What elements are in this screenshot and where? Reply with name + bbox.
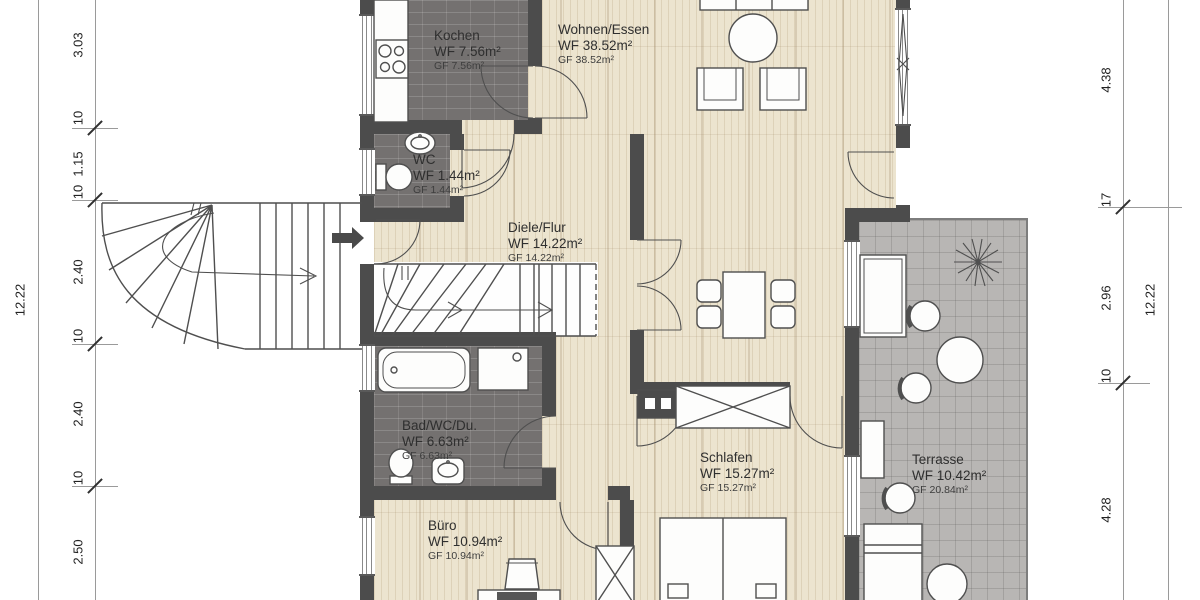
room-gf: GF 6.63m² <box>402 450 477 462</box>
wall <box>845 537 859 600</box>
dimension-label: 2.40 <box>71 401 86 426</box>
room-name: Diele/Flur <box>508 220 582 236</box>
room-label-schlafen: Schlafen WF 15.27m² GF 15.27m² <box>700 450 774 494</box>
wall <box>542 468 556 486</box>
room-label-bad: Bad/WC/Du. WF 6.63m² GF 6.63m² <box>402 418 477 462</box>
wall <box>360 486 556 500</box>
room-wf: WF 14.22m² <box>508 236 582 252</box>
dimension-label: 10 <box>71 329 86 343</box>
dimension-label: 10 <box>71 471 86 485</box>
room-label-buero: Büro WF 10.94m² GF 10.94m² <box>428 518 502 562</box>
terrasse-floor <box>859 218 1028 600</box>
window <box>844 455 860 537</box>
room-name: Terrasse <box>912 452 986 468</box>
dimension-label: 4.28 <box>1099 497 1114 522</box>
terrace-glass-door <box>844 240 860 328</box>
dimension-label: 2.96 <box>1099 285 1114 310</box>
window <box>359 148 375 196</box>
room-gf: GF 20.84m² <box>912 484 986 496</box>
window <box>895 8 911 126</box>
wall <box>360 120 462 134</box>
dimension-label: 3.03 <box>71 32 86 57</box>
room-gf: GF 10.94m² <box>428 550 502 562</box>
room-wf: WF 7.56m² <box>434 44 501 60</box>
wall <box>620 500 634 546</box>
dimension-label: 2.50 <box>71 539 86 564</box>
dimension-line <box>1168 0 1169 600</box>
room-name: Wohnen/Essen <box>558 22 649 38</box>
window <box>359 344 375 392</box>
wall <box>514 120 542 134</box>
wall <box>845 328 859 455</box>
entrance-arrow-icon <box>332 227 364 249</box>
internal-stairs-area <box>374 262 598 336</box>
wall <box>845 208 910 222</box>
room-wf: WF 10.94m² <box>428 534 502 550</box>
external-stairs-icon <box>102 203 362 349</box>
wall <box>642 382 790 394</box>
dimension-label: 10 <box>71 111 86 125</box>
room-name: Büro <box>428 518 502 534</box>
room-wf: WF 6.63m² <box>402 434 477 450</box>
dimension-label: 12.22 <box>1143 284 1158 317</box>
dimension-label: 4.38 <box>1099 67 1114 92</box>
dimension-line <box>38 0 39 600</box>
dimension-label: 1.15 <box>71 151 86 176</box>
wall <box>630 134 644 240</box>
room-name: WC <box>413 152 480 168</box>
room-label-wc: WC WF 1.44m² GF 1.44m² <box>413 152 480 196</box>
dimension-line <box>1123 0 1124 600</box>
wall <box>450 134 464 150</box>
room-wf: WF 15.27m² <box>700 466 774 482</box>
window <box>359 14 375 116</box>
wall <box>608 486 630 500</box>
room-gf: GF 38.52m² <box>558 54 649 66</box>
wall <box>360 332 556 346</box>
room-gf: GF 14.22m² <box>508 252 582 264</box>
room-wf: WF 10.42m² <box>912 468 986 484</box>
bad-floor <box>374 346 542 486</box>
floor-plan: Kochen WF 7.56m² GF 7.56m² Wohnen/Essen … <box>0 0 1200 600</box>
room-label-diele: Diele/Flur WF 14.22m² GF 14.22m² <box>508 220 582 264</box>
window <box>359 516 375 576</box>
room-wf: WF 38.52m² <box>558 38 649 54</box>
dimension-label: 2.40 <box>71 259 86 284</box>
wall <box>360 208 464 222</box>
room-name: Kochen <box>434 28 501 44</box>
room-label-terrasse: Terrasse WF 10.42m² GF 20.84m² <box>912 452 986 496</box>
room-gf: GF 1.44m² <box>413 184 480 196</box>
room-gf: GF 7.56m² <box>434 60 501 72</box>
dimension-label: 17 <box>1099 193 1114 207</box>
room-wf: WF 1.44m² <box>413 168 480 184</box>
room-name: Schlafen <box>700 450 774 466</box>
room-name: Bad/WC/Du. <box>402 418 477 434</box>
wall <box>845 222 859 240</box>
wall <box>528 0 542 66</box>
dimension-line <box>95 0 96 600</box>
room-label-wohnen: Wohnen/Essen WF 38.52m² GF 38.52m² <box>558 22 649 66</box>
room-gf: GF 15.27m² <box>700 482 774 494</box>
dimension-label: 10 <box>1099 369 1114 383</box>
dimension-label: 12.22 <box>13 284 28 317</box>
dimension-label: 10 <box>71 185 86 199</box>
wall <box>542 346 556 416</box>
room-label-kochen: Kochen WF 7.56m² GF 7.56m² <box>434 28 501 72</box>
